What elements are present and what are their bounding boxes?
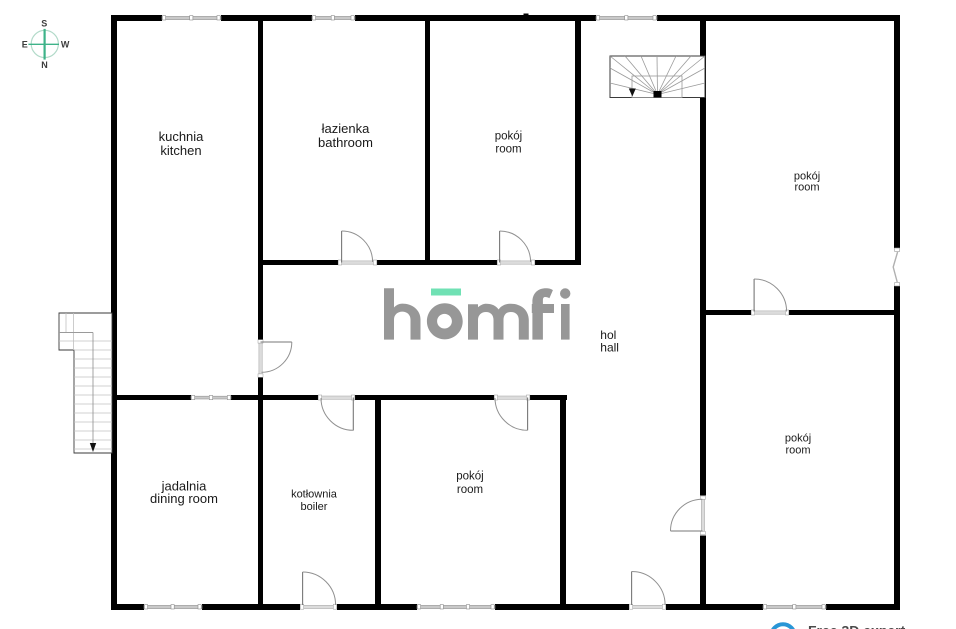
svg-text:bathroom: bathroom bbox=[318, 135, 373, 150]
svg-text:pokój: pokój bbox=[456, 471, 484, 483]
svg-text:N: N bbox=[41, 60, 48, 70]
svg-text:dining room: dining room bbox=[150, 491, 218, 506]
svg-text:kitchen: kitchen bbox=[160, 143, 201, 158]
svg-text:hall: hall bbox=[600, 341, 619, 355]
svg-text:S: S bbox=[41, 19, 47, 29]
svg-text:room: room bbox=[457, 484, 483, 496]
svg-text:pokój: pokój bbox=[785, 433, 811, 445]
svg-text:boiler: boiler bbox=[301, 501, 328, 513]
svg-text:room: room bbox=[785, 445, 810, 457]
svg-text:E: E bbox=[22, 39, 28, 49]
svg-text:kotłownia: kotłownia bbox=[291, 489, 338, 501]
svg-text:room: room bbox=[794, 182, 819, 194]
svg-text:room: room bbox=[495, 144, 521, 156]
svg-text:Free 3D expert: Free 3D expert bbox=[808, 623, 906, 629]
svg-text:pokój: pokój bbox=[495, 131, 523, 143]
svg-text:W: W bbox=[61, 39, 70, 49]
svg-text:łazienka: łazienka bbox=[322, 121, 370, 136]
svg-text:kuchnia: kuchnia bbox=[159, 129, 205, 144]
